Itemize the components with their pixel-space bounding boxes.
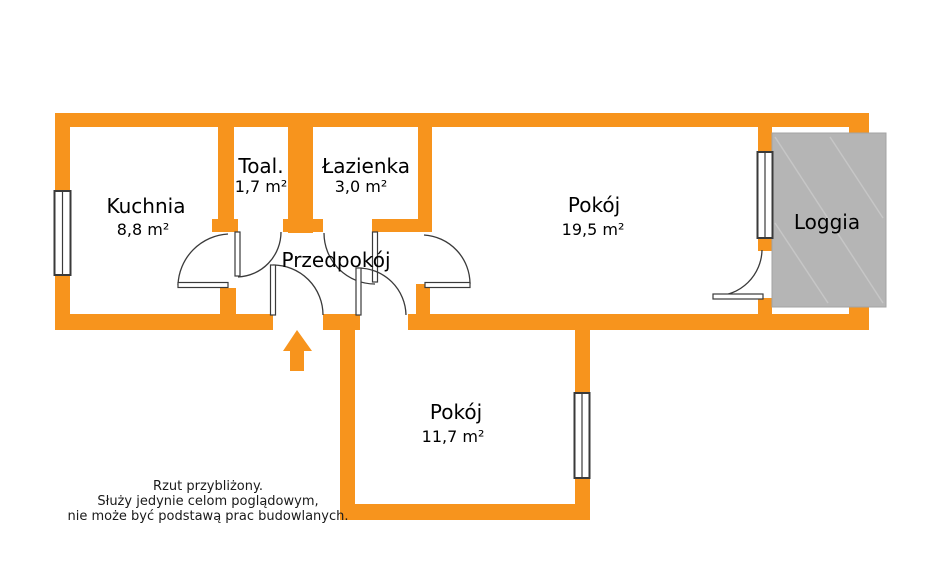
label-loggia: Loggia bbox=[794, 210, 860, 234]
wall-bottom-strip-left bbox=[55, 314, 273, 330]
wall-kitchen-hall-lower bbox=[220, 288, 236, 316]
wall-smallroom-right-upper bbox=[575, 330, 590, 393]
wall-loggia-lower bbox=[758, 298, 772, 316]
wall-kitchen-hall-upper bbox=[218, 127, 234, 232]
wall-smallroom-right-lower bbox=[575, 478, 590, 520]
wall-toal-cap bbox=[212, 219, 238, 232]
wall-toal-lazienka-foot bbox=[283, 219, 323, 232]
disclaimer-line-2: Służy jedynie celom poglądowym, bbox=[97, 494, 318, 509]
bigroom-door-leaf bbox=[425, 283, 470, 288]
wall-bottom-strip-right bbox=[408, 314, 869, 330]
smallroom-door-arc bbox=[358, 268, 406, 315]
floor-plan: Kuchnia 8,8 m² Toal. 1,7 m² Łazienka 3,0… bbox=[0, 0, 943, 575]
label-przedpokoj: Przedpokój bbox=[281, 248, 390, 272]
label-toaleta-area: 1,7 m² bbox=[235, 177, 288, 196]
wall-toal-lazienka bbox=[288, 127, 313, 233]
label-pokoj-duzy: Pokój bbox=[568, 193, 620, 217]
label-kuchnia-area: 8,8 m² bbox=[117, 220, 170, 239]
smallroom-door-leaf bbox=[356, 268, 361, 315]
smallroom-window-icon bbox=[575, 393, 590, 478]
kitchen-window-icon bbox=[55, 191, 71, 275]
kitchen-door-arc bbox=[178, 234, 228, 285]
label-pokoj-maly: Pokój bbox=[430, 400, 482, 424]
disclaimer-line-1: Rzut przybliżony. bbox=[153, 479, 263, 494]
label-kuchnia: Kuchnia bbox=[107, 194, 186, 218]
label-lazienka-area: 3,0 m² bbox=[335, 177, 388, 196]
wall-top bbox=[55, 113, 869, 127]
wall-hall-pokoj-upper bbox=[418, 127, 432, 232]
doors bbox=[178, 232, 763, 315]
wall-hall-pokoj-lower bbox=[416, 284, 430, 316]
wall-smallroom-bottom bbox=[340, 504, 590, 520]
entrance-door-leaf bbox=[271, 265, 276, 315]
label-toaleta: Toal. bbox=[237, 154, 283, 178]
kitchen-door-leaf bbox=[178, 283, 228, 288]
loggia-door-arc bbox=[715, 250, 762, 296]
label-pokoj-duzy-area: 19,5 m² bbox=[562, 220, 625, 239]
loggia-door-leaf bbox=[713, 294, 763, 299]
entrance-arrow-icon bbox=[283, 330, 312, 371]
floor-plan-canvas: Kuchnia 8,8 m² Toal. 1,7 m² Łazienka 3,0… bbox=[0, 0, 943, 575]
wall-smallroom-left bbox=[340, 316, 355, 520]
wall-loggia-upper bbox=[758, 127, 772, 153]
entrance-door-arc bbox=[273, 265, 323, 315]
loggia-window-icon bbox=[758, 152, 773, 238]
toilet-door-leaf bbox=[235, 232, 240, 276]
label-pokoj-maly-area: 11,7 m² bbox=[422, 427, 485, 446]
label-lazienka: Łazienka bbox=[321, 154, 410, 178]
wall-loggia-mid bbox=[758, 237, 772, 251]
disclaimer-line-3: nie może być podstawą prac budowlanych. bbox=[67, 509, 348, 524]
bigroom-door-arc bbox=[424, 235, 470, 284]
disclaimer: Rzut przybliżony. Służy jedynie celom po… bbox=[67, 479, 348, 524]
walls bbox=[55, 113, 869, 520]
